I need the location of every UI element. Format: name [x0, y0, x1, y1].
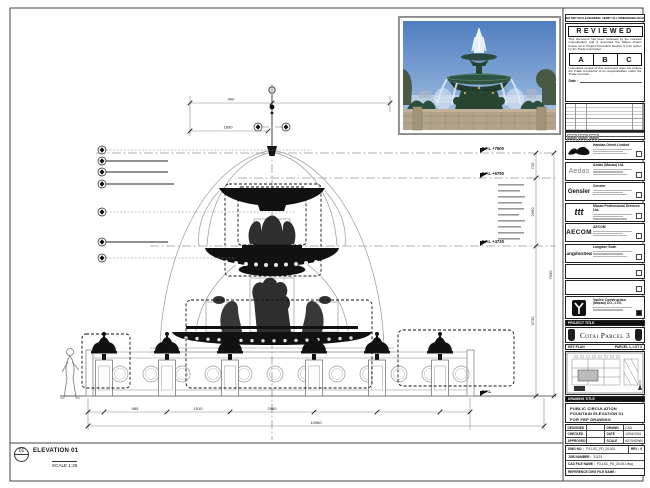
svg-text:F.F.L: F.F.L [482, 389, 492, 394]
date-label: Date : [569, 79, 578, 83]
status-checkbox [636, 192, 642, 198]
status-checkbox [636, 172, 642, 178]
status-checkbox [636, 270, 642, 276]
drawing-sheet: { "drawing": { "elevation_bubble": "01",… [0, 0, 650, 488]
status-checkbox [636, 254, 642, 260]
scale-figure [60, 349, 80, 399]
reference-box: DWG NO. :P3-LSC_PD_20-001 REV : 0 JOB NU… [565, 445, 645, 476]
gensler-logo: Gensler [566, 183, 592, 200]
svg-text:1890: 1890 [224, 125, 234, 130]
project-title: Cotai Parcel 3 [580, 331, 630, 340]
keynote-text-block [498, 184, 525, 240]
svg-text:F.F.L +6790: F.F.L +6790 [482, 171, 505, 176]
stamp-paragraph-2: Consultant review of this document does … [569, 67, 642, 77]
svg-text:10960: 10960 [310, 420, 322, 425]
consultant-name: Gensler [593, 185, 643, 189]
handan-logo [566, 142, 592, 159]
stamp-date-row: Date : [569, 79, 642, 83]
consultant-box-gensler: Gensler Gensler [565, 182, 645, 201]
consultant-box-empty-2 [565, 280, 645, 295]
yaulee-logo [566, 297, 592, 318]
consultant-box-handan: Handan Orient Limited [565, 141, 645, 160]
key-plan-drawing [566, 352, 644, 394]
status-checkbox [636, 151, 642, 157]
svg-text:2980: 2980 [268, 406, 278, 411]
lower-statues [206, 278, 338, 332]
svg-text:F.F.L +7500: F.F.L +7500 [482, 146, 505, 151]
consultant-box-aecom: AECOM AECOM [565, 223, 645, 242]
job-number-row: JOB NUMBER :31123 [566, 453, 644, 461]
consultant-name: AECOM [593, 226, 643, 230]
upper-statues [242, 216, 302, 250]
bottom-dimensions: 985 1510 2980 10960 [86, 398, 547, 430]
top-dimensions: 400 1890 [188, 96, 393, 136]
drawing-title-line: FOR FBP DRAWING [570, 417, 644, 422]
scope-outlines [82, 184, 514, 388]
langdon-seah-logo: LangdonSeah [566, 245, 592, 262]
status-boxes: A B C [569, 53, 642, 66]
issue-record-strip [565, 131, 645, 140]
title-block-column: DO NOT SCALE DRAWING. VERIFY ALL DIMENSI… [565, 14, 647, 478]
stamp-paragraph-1: This document has been reviewed by the r… [569, 38, 642, 52]
svg-text:F.F.L +4730: F.F.L +4730 [482, 239, 505, 244]
reviewed-title: REVIEWED [568, 26, 643, 37]
status-checkbox [636, 286, 642, 292]
status-c: C [618, 54, 641, 65]
svg-text:985: 985 [132, 406, 139, 411]
elevation-title: 01 ELEVATION 01 SCALE 1:25 [14, 447, 154, 472]
north-arrow-icon [638, 380, 642, 390]
consultant-name: Aedas (Macau) Ltd. [593, 164, 643, 168]
status-checkbox [636, 310, 642, 316]
consultant-box-aedas: Aedas Aedas (Macau) Ltd. [565, 162, 645, 181]
key-plan-box [565, 351, 645, 395]
emblem-icon [635, 329, 642, 341]
aedas-logo: Aedas [566, 163, 592, 180]
elevation-scale: SCALE 1:25 [52, 461, 77, 468]
elevation-bubble: 01 [14, 447, 29, 462]
consultant-box-mps: ttt Macau Professional Services Ltd. [565, 203, 645, 222]
status-checkbox [636, 213, 642, 219]
elevation-label: ELEVATION 01 [14, 447, 154, 454]
reference-dwg-row: REFERENCE DWG FILE NAME : [566, 468, 644, 476]
consultant-box-empty-1 [565, 264, 645, 279]
aecom-logo: AECOM [566, 224, 592, 241]
perimeter-wall [86, 350, 474, 396]
fountain-photo-image [399, 17, 560, 134]
consultant-name: Macau Professional Services Ltd. [593, 205, 643, 212]
contractor-name-2: (Macau) CO., LTD. [593, 302, 643, 306]
svg-text:710: 710 [530, 162, 535, 169]
top-basin [219, 188, 325, 211]
revision-table [565, 103, 645, 131]
consultant-name: Handan Orient Limited [593, 144, 643, 148]
finial [254, 87, 290, 156]
contractor-box: Yaulee Construction (Macau) CO., LTD. [565, 296, 645, 319]
emblem-icon [568, 329, 575, 341]
key-plan-parcel: PARCEL 1, LOT 3 [615, 345, 642, 349]
reviewed-stamp: REVIEWED This document has been reviewed… [565, 23, 645, 102]
middle-basin [205, 248, 339, 276]
fountain-reference-photo [398, 16, 561, 135]
status-a: A [570, 54, 594, 65]
key-plan-band: KEY PLAN PARCEL 1, LOT 3 [565, 344, 645, 350]
drawing-title-box: PUBLIC CIRCULATION FOUNTAIN ELEVATION 01… [565, 403, 645, 423]
svg-text:400: 400 [228, 97, 235, 102]
key-plan-label: KEY PLAN [568, 345, 585, 349]
drawing-title-band: DRAWING TITLE [565, 396, 645, 402]
dwg-no-row: DWG NO. :P3-LSC_PD_20-001 REV : 0 [566, 446, 644, 453]
svg-text:7500: 7500 [548, 270, 553, 280]
status-checkbox [636, 233, 642, 239]
status-b: B [594, 54, 618, 65]
level-markers: F.F.L +7500 F.F.L +6790 F.F.L +4730 F.F.… [480, 146, 505, 396]
svg-text:4730: 4730 [530, 316, 535, 326]
title-table: DESIGNED- DRAWNCAD CHECKED- DATE12/04/20… [565, 424, 645, 444]
project-title-band: PROJECT TITLE [565, 320, 645, 326]
date-line [580, 79, 642, 83]
cad-file-row: CAD FILE NAME :P3-LSC_PD_20-001.dwg [566, 460, 644, 468]
svg-text:2060: 2060 [530, 207, 535, 217]
svg-text:1510: 1510 [194, 406, 204, 411]
notes-strip: DO NOT SCALE DRAWING. VERIFY ALL DIMENSI… [565, 14, 645, 22]
mps-logo: ttt [566, 204, 592, 221]
consultant-box-langdon: LangdonSeah Langdon Seah [565, 244, 645, 263]
consultant-name: Langdon Seah [593, 246, 643, 250]
project-title-box: Cotai Parcel 3 [565, 327, 645, 343]
right-dimensions: 710 2060 4730 7500 [530, 151, 556, 399]
